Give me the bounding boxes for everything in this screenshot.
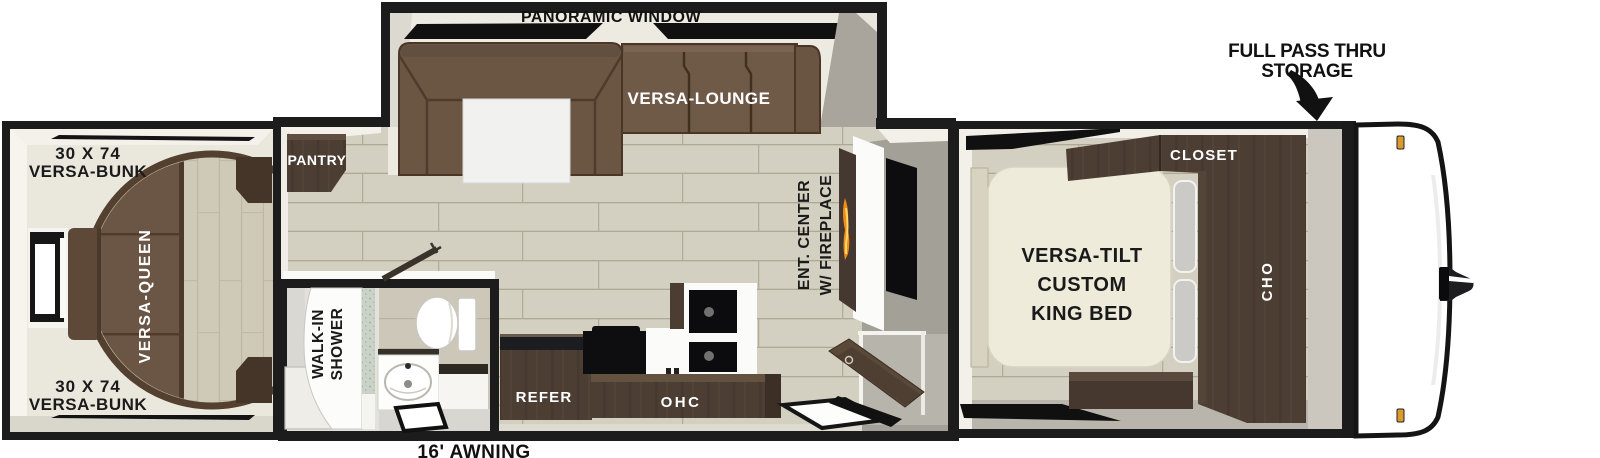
svg-text:VERSA-TILT: VERSA-TILT <box>1021 245 1142 267</box>
svg-text:WALK-IN: WALK-IN <box>310 309 327 379</box>
svg-text:30 X 74: 30 X 74 <box>55 144 121 163</box>
svg-text:STORAGE: STORAGE <box>1261 61 1353 82</box>
svg-text:VERSA-BUNK: VERSA-BUNK <box>29 162 148 181</box>
svg-text:CHO: CHO <box>1259 261 1276 302</box>
svg-text:16' AWNING: 16' AWNING <box>417 442 530 458</box>
svg-text:VERSA-LOUNGE: VERSA-LOUNGE <box>628 89 771 108</box>
svg-text:SHOWER: SHOWER <box>329 308 346 381</box>
svg-text:VERSA-BUNK: VERSA-BUNK <box>29 395 148 414</box>
svg-text:VERSA-QUEEN: VERSA-QUEEN <box>137 229 154 364</box>
svg-text:CLOSET: CLOSET <box>1170 147 1238 164</box>
svg-text:W/ FIREPLACE: W/ FIREPLACE <box>818 175 835 296</box>
svg-text:KING BED: KING BED <box>1031 303 1133 325</box>
svg-text:REFER: REFER <box>516 389 573 406</box>
svg-text:PANORAMIC WINDOW: PANORAMIC WINDOW <box>521 9 702 26</box>
svg-text:ENT. CENTER: ENT. CENTER <box>796 180 813 290</box>
svg-text:30 X 74: 30 X 74 <box>55 377 121 396</box>
svg-text:OHC: OHC <box>661 394 702 411</box>
svg-text:PANTRY: PANTRY <box>288 152 347 168</box>
svg-text:CUSTOM: CUSTOM <box>1037 274 1126 296</box>
svg-text:FULL PASS THRU: FULL PASS THRU <box>1228 41 1386 62</box>
